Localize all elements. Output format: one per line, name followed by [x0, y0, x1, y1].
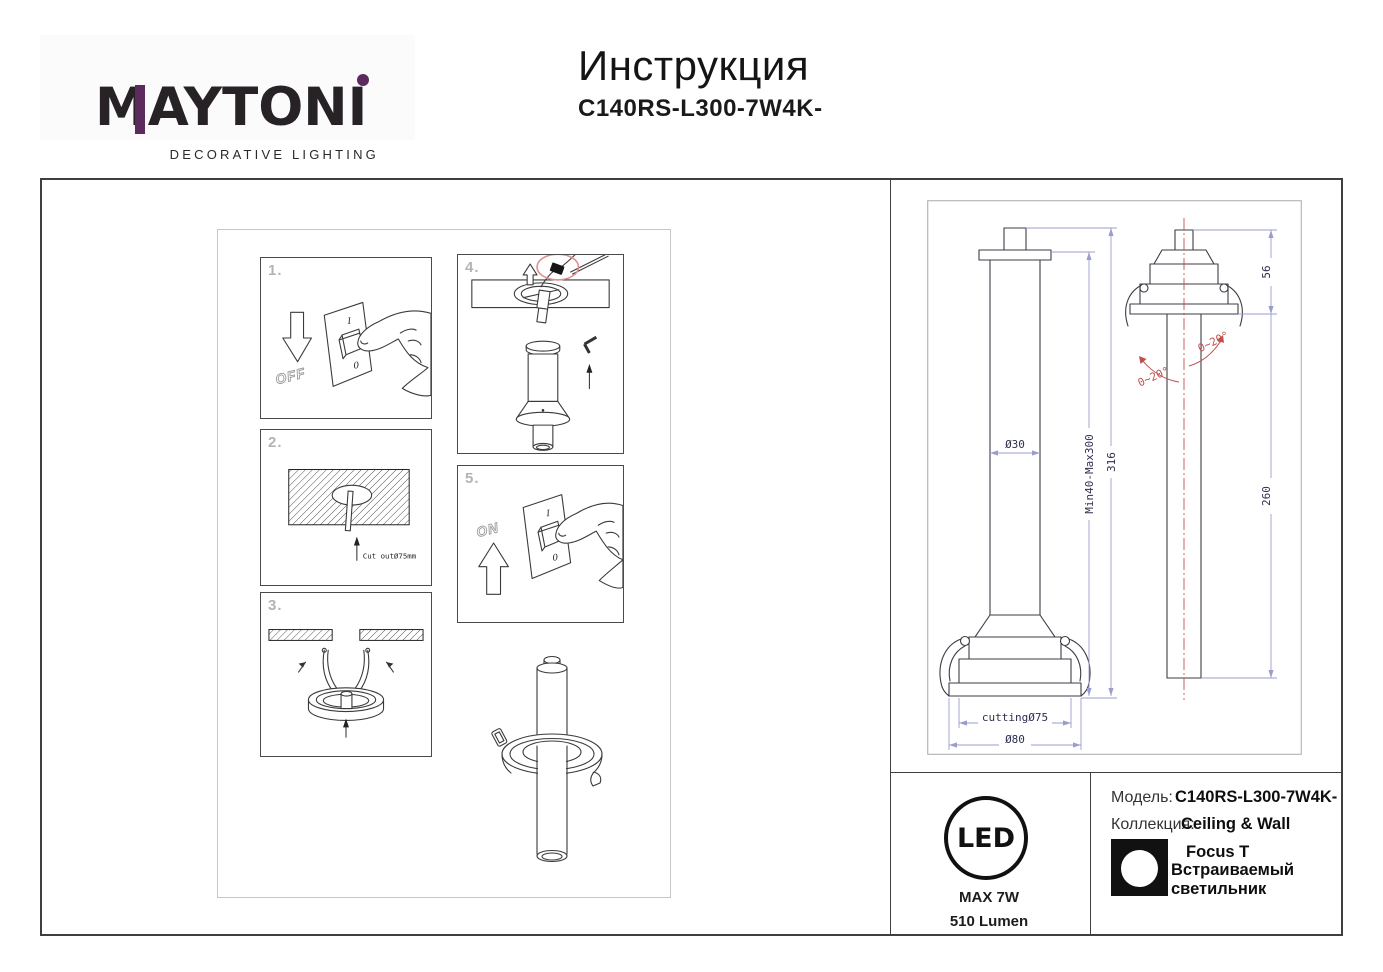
up-arrow-icon [343, 718, 349, 727]
up-arrow-icon [479, 543, 509, 594]
allen-key [584, 337, 596, 353]
dim-tube-diameter: Ø30 [1005, 438, 1025, 451]
installation-sheet: 1. OFF I 0 [217, 229, 671, 898]
mount-bracket [537, 290, 550, 309]
led-label: LED [957, 823, 1015, 854]
fixture-head [516, 412, 569, 426]
step-4-number: 4. [465, 259, 480, 276]
trim-ring [949, 683, 1081, 696]
ceiling-left [269, 630, 332, 641]
luminous-flux: 510 Lumen [891, 913, 1087, 930]
product-icon [1111, 839, 1168, 896]
logo-purple-dot-icon [357, 74, 369, 86]
step-2-cutout-illustration: Cut outØ75mm [261, 430, 431, 585]
down-arrow-icon [283, 312, 312, 361]
driver-cap [526, 341, 560, 351]
up-arrow-icon [354, 537, 360, 546]
step-2-number: 2. [268, 434, 283, 451]
instruction-page: MAYTONI DECORATIVE LIGHTING Инструкция C… [0, 0, 1383, 972]
technical-drawing: Ø30 cuttingØ75 Ø80 [927, 200, 1302, 755]
up-arrow-icon [586, 364, 592, 373]
latch [591, 772, 601, 786]
step-1-number: 1. [268, 262, 283, 279]
brand-tagline: DECORATIVE LIGHTING [170, 147, 379, 162]
driver-body [528, 354, 558, 401]
collection-value: Ceiling & Wall [1181, 815, 1290, 834]
maytoni-logo: MAYTONI DECORATIVE LIGHTING [40, 35, 415, 140]
on-label: ON [475, 519, 501, 540]
off-label: OFF [274, 364, 308, 387]
clip-tab [491, 728, 507, 747]
cutout-note: Cut outØ75mm [363, 551, 417, 560]
step-5-switch-on-illustration: ON I 0 [458, 466, 623, 622]
dimensions-panel: Ø30 cuttingØ75 Ø80 [890, 180, 1341, 934]
ceiling-right [360, 630, 423, 641]
upper-tube [537, 668, 567, 736]
fixture-3d-sketch [480, 650, 625, 890]
page-title: Инструкция [578, 42, 823, 90]
step-3-insert-illustration [261, 593, 431, 756]
brand-wordmark: MAYTONI DECORATIVE LIGHTING [95, 81, 385, 137]
title-block: Инструкция C140RS-L300-7W4K- [578, 42, 823, 123]
logo-purple-bar-icon [135, 85, 145, 134]
dim-cutting-hole: cuttingØ75 [982, 711, 1048, 724]
step-1-box: 1. OFF I 0 [260, 257, 432, 419]
step-4-box: 4. [457, 254, 624, 454]
led-cell: LED MAX 7W 510 Lumen [891, 773, 1091, 934]
dim-total-height: 316 [1105, 452, 1118, 472]
step-1-switch-off-illustration: OFF I 0 [261, 258, 431, 418]
step-2-box: 2. Cut outØ75mm [260, 429, 432, 586]
model-label: Модель: [1111, 789, 1173, 807]
header-model-code: C140RS-L300-7W4K- [578, 95, 823, 123]
step-5-box: 5. ON I 0 [457, 465, 624, 623]
step-3-number: 3. [268, 597, 283, 614]
step-5-number: 5. [465, 470, 480, 487]
dim-trim-diameter: Ø80 [1005, 733, 1025, 746]
dim-head-height: 56 [1260, 265, 1273, 278]
model-cell: Модель: C140RS-L300-7W4K- Коллекция: Cei… [1091, 773, 1341, 934]
dim-body-length: 260 [1260, 486, 1273, 506]
dimension-drawing: Ø30 cuttingØ75 Ø80 [927, 200, 1302, 755]
fixture-3d-illustration [480, 650, 625, 890]
series-name: Focus T [1186, 843, 1249, 862]
content-frame: 1. OFF I 0 [40, 178, 1343, 936]
step-4-wiring-illustration [458, 255, 623, 453]
step-3-box: 3. [260, 592, 432, 757]
model-value: C140RS-L300-7W4K- [1175, 788, 1337, 807]
spec-strip: LED MAX 7W 510 Lumen Модель: C140RS-L300… [891, 772, 1341, 934]
dim-adjustable-length: Min40-Max300 [1083, 434, 1096, 513]
front-view [940, 228, 1090, 696]
screwdriver [571, 255, 609, 274]
installation-panel: 1. OFF I 0 [42, 180, 890, 934]
tilt-angle-left: 0~20° [1136, 364, 1172, 389]
led-logo-icon: LED [944, 796, 1028, 880]
product-type: Встраиваемый светильник [1171, 861, 1341, 899]
max-power: MAX 7W [891, 889, 1087, 906]
